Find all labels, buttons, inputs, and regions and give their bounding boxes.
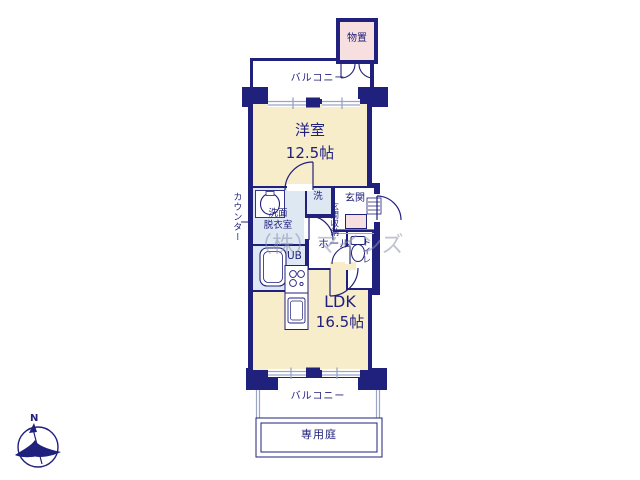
label-west-room: 洋室 (251, 122, 369, 139)
label-compass-north: N (30, 413, 38, 425)
label-entrance: 玄関 (336, 193, 374, 205)
label-private-garden: 専用庭 (256, 429, 382, 442)
label-storage: 物置 (338, 33, 376, 45)
floor-plan: 物置 バルコニー 洋室 12.5帖 洗 玄関 玄関収納 洗面 脱衣室 カウンター… (0, 0, 640, 480)
label-laundry: 洗 (306, 192, 330, 203)
wall-balcony-top (250, 58, 342, 61)
label-counter: カウンター (231, 192, 241, 270)
label-balcony-bottom: バルコニー (266, 391, 370, 403)
label-west-room-size: 12.5帖 (251, 145, 369, 162)
compass-icon (15, 423, 61, 467)
label-washroom-line1: 洗面 (255, 209, 301, 220)
label-balcony-top: バルコニー (266, 73, 370, 85)
label-ldk-size: 16.5帖 (293, 314, 387, 331)
watermark-text: （株）マインズ (250, 227, 404, 259)
label-ldk: LDK (298, 293, 382, 311)
